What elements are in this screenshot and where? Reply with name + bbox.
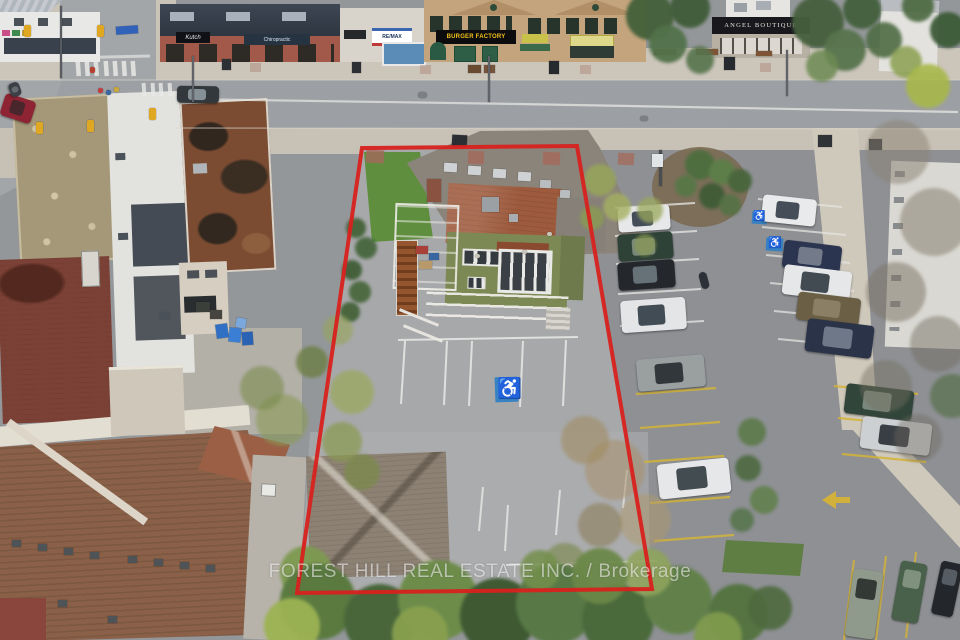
aerial-photo: Kutch Chiropractic RE/MAX BURGER FACTORY <box>0 0 960 640</box>
property-boundary-outline <box>297 146 652 593</box>
property-outline-layer <box>0 0 960 640</box>
brokerage-watermark: FOREST HILL REAL ESTATE INC. / Brokerage <box>0 561 960 583</box>
